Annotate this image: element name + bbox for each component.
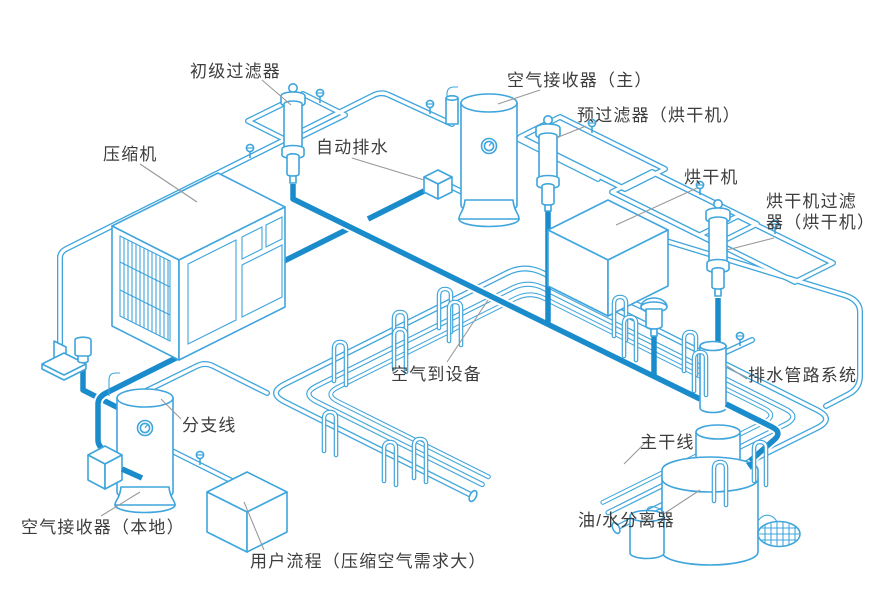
label-main-line: 主干线 [640,432,695,453]
timed-drain-cube-graphic [88,446,122,489]
label-auto-drain: 自动排水 [316,137,389,158]
label-oil-water-separator: 油/水分离器 [578,510,675,531]
air-receiver-main-graphic [446,87,519,227]
air-receiver-local-graphic [109,373,175,513]
label-user-process: 用户流程（压缩空气需求大） [250,551,487,572]
user-process-graphic [207,472,287,552]
piping-diagram: 初级过滤器 压缩机 自动排水 空气接收器（主） 预过滤器（烘干机） 烘干机 烘干… [0,0,870,600]
label-pre-filter-dryer: 预过滤器（烘干机） [577,105,741,126]
label-branch-line: 分支线 [182,415,237,436]
compressor-graphic [112,173,285,360]
label-primary-filter: 初级过滤器 [190,61,281,82]
label-dryer: 烘干机 [684,167,739,188]
label-air-receiver-main: 空气接收器（主） [507,70,653,91]
primary-filter-graphic [281,84,305,183]
label-dryer-filter-line2: 器（烘干机） [766,212,870,233]
pre-filter-graphic [536,116,560,211]
label-dryer-filter: 烘干机过滤 器（烘干机） [766,191,870,233]
label-air-receiver-local: 空气接收器（本地） [21,517,185,538]
auto-drain-graphic [424,170,452,199]
label-dryer-filter-line1: 烘干机过滤 [766,191,870,212]
label-compressor: 压缩机 [103,144,158,165]
compressor-drain-device-graphic [75,337,91,363]
label-drain-piping-system: 排水管路系统 [748,365,857,386]
dryer-filter-graphic [706,200,730,296]
diagram-canvas [0,0,870,600]
label-air-to-equipment: 空气到设备 [391,364,482,385]
